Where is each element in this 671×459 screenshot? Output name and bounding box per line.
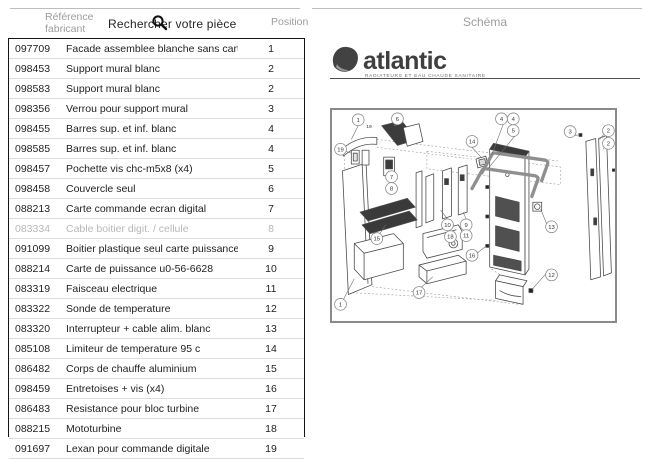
schema-section-label: Schéma	[330, 15, 640, 29]
table-row[interactable]: 088213 Carte commande ecran digital 7	[9, 199, 304, 219]
diagram-callout[interactable]: 8	[386, 183, 398, 195]
part-position: 14	[238, 343, 304, 355]
reference-column-label: Référence fabricant	[45, 11, 115, 35]
svg-text:1: 1	[339, 302, 342, 308]
atlantic-logo-wordmark: atlantic	[363, 47, 447, 75]
part-label: Corps de chauffe aluminium	[61, 363, 238, 375]
part-reference: 088213	[9, 203, 61, 215]
svg-text:19: 19	[337, 147, 344, 153]
part-position: 16	[238, 383, 304, 395]
duct-17	[419, 255, 466, 283]
foot-12	[496, 275, 533, 304]
part-position: 7	[238, 203, 304, 215]
part-position: 4	[238, 143, 304, 155]
brackets-9-10-11	[416, 165, 467, 228]
position-column-label: Position	[271, 16, 308, 28]
atlantic-logo: atlantic RADIATEURS ET EAU CHAUDE SANITA…	[330, 44, 640, 80]
logo-underline	[330, 78, 640, 79]
part-position: 6	[238, 183, 304, 195]
diagram-callout[interactable]: 2	[603, 137, 615, 149]
part-reference: 098583	[9, 83, 61, 95]
diagram-callout[interactable]: 3	[564, 126, 576, 138]
table-row[interactable]: 098356 Verrou pour support mural 3	[9, 99, 304, 119]
heating-fins-15	[360, 198, 417, 233]
svg-text:9: 9	[464, 223, 467, 229]
part-reference: 098459	[9, 383, 61, 395]
parts-table-body: 097709 Facade assemblee blanche sans car…	[9, 39, 304, 459]
part-label: Cable boitier digit. / cellule	[61, 223, 238, 235]
svg-text:10: 10	[444, 223, 451, 229]
search-icon[interactable]	[151, 14, 168, 31]
part-label: Verrou pour support mural	[61, 103, 238, 115]
diagram-callout[interactable]: 12	[546, 269, 558, 281]
part-label: Carte de puissance u0-56-6628	[61, 263, 238, 275]
part-reference: 098455	[9, 123, 61, 135]
parts-table: 097709 Facade assemblee blanche sans car…	[8, 38, 305, 437]
part-reference: 098585	[9, 143, 61, 155]
part-reference: 085108	[9, 343, 61, 355]
diagram-callout[interactable]: 11	[460, 230, 472, 242]
part-reference: 098356	[9, 103, 61, 115]
part-position: 2	[238, 63, 304, 75]
diagram-callout[interactable]: 19	[335, 143, 347, 155]
table-row[interactable]: 098585 Barres sup. et inf. blanc 4	[9, 139, 304, 159]
table-row[interactable]: 098458 Couvercle seul 6	[9, 179, 304, 199]
svg-text:13: 13	[548, 225, 555, 231]
top-bracket-6	[382, 121, 423, 147]
part-position: 15	[238, 363, 304, 375]
table-row[interactable]: 086482 Corps de chauffe aluminium 15	[9, 359, 304, 379]
part-reference: 086483	[9, 403, 61, 415]
table-row[interactable]: 083319 Faisceau electrique 11	[9, 279, 304, 299]
part-label: Limiteur de temperature 95 c	[61, 343, 238, 355]
diagram-callout[interactable]: 7	[386, 171, 398, 183]
part-label: Resistance pour bloc turbine	[61, 403, 238, 415]
part-label: Support mural blanc	[61, 83, 238, 95]
diagram-callout[interactable]: 6	[392, 113, 404, 125]
parts-list-header: Référence fabricant Rechercher votre piè…	[8, 9, 305, 38]
exploded-schematic: 1196191444532278109111315181612171	[330, 108, 617, 323]
table-row[interactable]: 083320 Interrupteur + cable alim. blanc …	[9, 319, 304, 339]
part-label: Barres sup. et inf. blanc	[61, 123, 238, 135]
diagram-callout[interactable]: 19	[366, 124, 372, 130]
diagram-callout[interactable]: 1	[352, 114, 364, 126]
svg-text:1: 1	[357, 118, 360, 124]
part-position: 13	[238, 323, 304, 335]
schematic-drawing: 1196191444532278109111315181612171	[332, 110, 615, 321]
diagram-callout[interactable]: 4	[507, 113, 519, 125]
part-reference: 088214	[9, 263, 61, 275]
svg-text:12: 12	[548, 273, 555, 279]
part-label: Couvercle seul	[61, 183, 238, 195]
atlantic-logo-mark	[333, 47, 358, 72]
diagram-callout[interactable]: 9	[460, 219, 472, 231]
svg-text:16: 16	[469, 253, 476, 259]
part-label: Faisceau electrique	[61, 283, 238, 295]
part-label: Support mural blanc	[61, 63, 238, 75]
svg-text:18: 18	[447, 235, 454, 241]
part-position: 4	[238, 123, 304, 135]
diagram-callout[interactable]: 17	[413, 287, 425, 299]
part-position: 19	[238, 443, 304, 455]
part-reference: 091697	[9, 443, 61, 455]
svg-text:2: 2	[607, 129, 610, 135]
part-position: 5	[238, 163, 304, 175]
diagram-callout[interactable]: 16	[466, 249, 478, 261]
part-position: 17	[238, 403, 304, 415]
part-reference: 098453	[9, 63, 61, 75]
part-label: Boitier plastique seul carte puissance	[61, 243, 238, 255]
part-position: 9	[238, 243, 304, 255]
table-row[interactable]: 098459 Entretoises + vis (x4) 16	[9, 379, 304, 399]
part-label: Mototurbine	[61, 423, 238, 435]
part-reference: 097709	[9, 43, 61, 55]
table-row[interactable]: 085108 Limiteur de temperature 95 c 14	[9, 339, 304, 359]
diagram-callout[interactable]: 18	[445, 231, 457, 243]
turbine-18	[423, 225, 462, 258]
part-label: Lexan pour commande digitale	[61, 443, 238, 455]
part-reference: 088215	[9, 423, 61, 435]
table-row[interactable]: 097709 Facade assemblee blanche sans car…	[9, 39, 304, 59]
part-position: 12	[238, 303, 304, 315]
table-row[interactable]: 088215 Mototurbine 18	[9, 419, 304, 439]
part-position: 2	[238, 83, 304, 95]
part-label: Barres sup. et inf. blanc	[61, 143, 238, 155]
svg-text:15: 15	[374, 237, 381, 243]
search-placeholder: Rechercher votre pièce	[108, 17, 236, 31]
wall-support-2-3	[579, 134, 615, 280]
top-divider-right	[312, 8, 642, 9]
table-row[interactable]: 098583 Support mural blanc 2	[9, 79, 304, 99]
search-input[interactable]: Rechercher votre pièce	[108, 14, 268, 34]
svg-text:11: 11	[463, 234, 469, 240]
part-position: 3	[238, 103, 304, 115]
part-reference: 098458	[9, 183, 61, 195]
part-label: Facade assemblee blanche sans carte elec	[61, 43, 238, 55]
diagram-callout[interactable]: 14	[466, 136, 478, 148]
diagram-callout[interactable]: 4	[496, 113, 508, 125]
part-position: 8	[238, 223, 304, 235]
diagram-callout[interactable]: 2	[603, 125, 615, 137]
part-label: Entretoises + vis (x4)	[61, 383, 238, 395]
svg-text:14: 14	[469, 139, 476, 145]
part-reference: 091099	[9, 243, 61, 255]
svg-text:2: 2	[607, 141, 610, 147]
part-position: 18	[238, 423, 304, 435]
part-reference: 083320	[9, 323, 61, 335]
part-reference: 083322	[9, 303, 61, 315]
part-label: Carte commande ecran digital	[61, 203, 238, 215]
table-row[interactable]: 088214 Carte de puissance u0-56-6628 10	[9, 259, 304, 279]
table-row[interactable]: 086483 Resistance pour bloc turbine 17	[9, 399, 304, 419]
part-label: Pochette vis chc-m5x8 (x4)	[61, 163, 238, 175]
table-row[interactable]: 083322 Sonde de temperature 12	[9, 299, 304, 319]
table-row[interactable]: 098455 Barres sup. et inf. blanc 4	[9, 119, 304, 139]
part-position: 1	[238, 43, 304, 55]
table-row[interactable]: 098453 Support mural blanc 2	[9, 59, 304, 79]
table-row[interactable]: 083334 Cable boitier digit. / cellule 8	[9, 219, 304, 239]
diagram-callout[interactable]: 13	[546, 221, 558, 233]
part-label: Sonde de temperature	[61, 303, 238, 315]
part-reference: 083334	[9, 223, 61, 235]
diagram-callout[interactable]: 1	[335, 298, 347, 310]
svg-text:7: 7	[390, 175, 393, 181]
part-reference: 098457	[9, 163, 61, 175]
svg-text:19: 19	[366, 124, 372, 130]
part-reference: 086482	[9, 363, 61, 375]
table-row[interactable]: 098457 Pochette vis chc-m5x8 (x4) 5	[9, 159, 304, 179]
table-row[interactable]: 091099 Boitier plastique seul carte puis…	[9, 239, 304, 259]
knob-13	[533, 202, 542, 211]
diagram-callout[interactable]: 15	[371, 233, 383, 245]
diagram-callout[interactable]: 10	[442, 219, 454, 231]
part-position: 10	[238, 263, 304, 275]
part-label: Interrupteur + cable alim. blanc	[61, 323, 238, 335]
part-position: 11	[238, 283, 304, 295]
part-reference: 083319	[9, 283, 61, 295]
svg-text:17: 17	[416, 291, 423, 297]
table-row[interactable]: 091697 Lexan pour commande digitale 19	[9, 439, 304, 459]
diagram-callout[interactable]: 5	[507, 125, 519, 137]
